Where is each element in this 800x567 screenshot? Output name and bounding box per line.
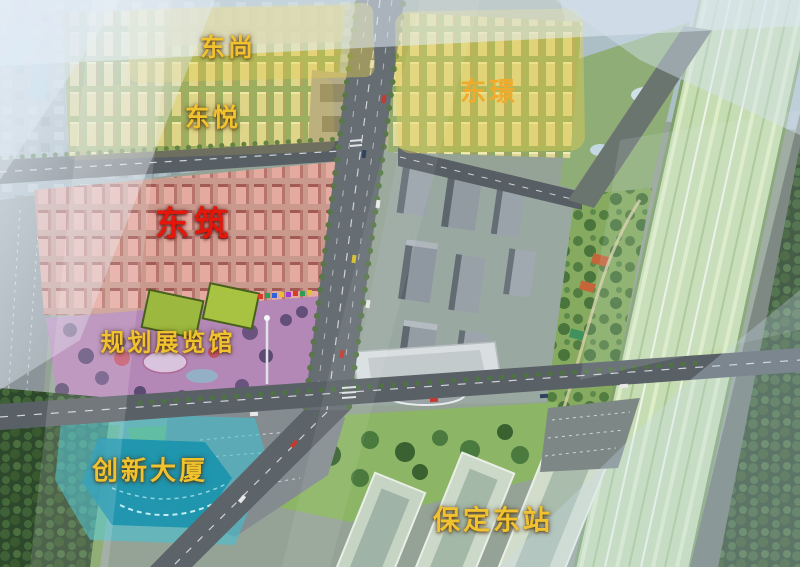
district-label-dongshang: 东尚: [200, 28, 256, 64]
district-label-baoding-east-station: 保定东站: [433, 499, 553, 538]
district-label-dongyue: 东悦: [185, 98, 241, 134]
master-plan-map: 东尚 东悦 东璟 东筑 规划展览馆 创新大厦 保定东站: [0, 0, 800, 567]
district-label-dongjing: 东璟: [460, 72, 518, 109]
district-label-innovation-tower: 创新大厦: [92, 451, 208, 488]
district-label-dongzhu: 东筑: [155, 197, 233, 246]
district-label-planning-exhibition-hall: 规划展览馆: [101, 323, 236, 358]
